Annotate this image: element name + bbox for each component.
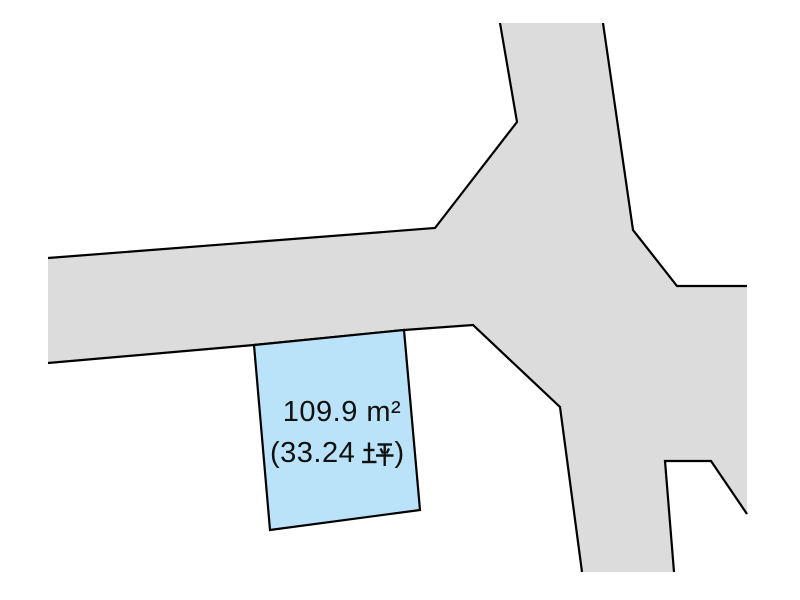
parcel-area-tsubo-close: ) (395, 437, 405, 469)
parcel-area-sqm-label: 109.9 m² (283, 396, 401, 428)
lot-map: 109.9 m² (33.24 ) (0, 0, 800, 600)
parcel-area-tsubo-open: (33.24 (270, 437, 355, 469)
parcel-shape (254, 330, 420, 530)
lot-map-page: 109.9 m² (33.24 ) (0, 0, 800, 600)
